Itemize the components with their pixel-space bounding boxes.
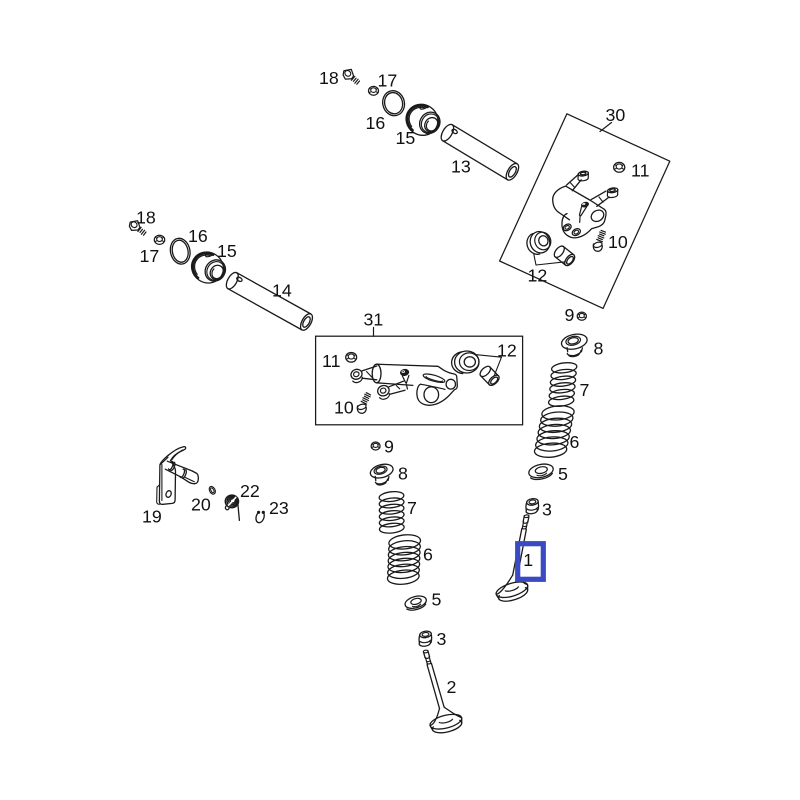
svg-text:1: 1 (523, 550, 533, 570)
svg-text:22: 22 (240, 481, 260, 501)
svg-text:12: 12 (497, 341, 517, 361)
svg-text:16: 16 (188, 226, 208, 246)
svg-text:11: 11 (631, 161, 650, 181)
svg-text:13: 13 (451, 157, 471, 177)
svg-text:3: 3 (437, 629, 447, 649)
svg-text:11: 11 (322, 351, 341, 371)
svg-text:7: 7 (407, 498, 417, 518)
svg-text:15: 15 (396, 128, 416, 148)
svg-text:16: 16 (366, 113, 386, 133)
svg-text:14: 14 (272, 281, 292, 301)
svg-text:8: 8 (398, 464, 408, 484)
svg-text:5: 5 (558, 464, 568, 484)
svg-text:18: 18 (319, 68, 339, 88)
svg-text:15: 15 (217, 241, 237, 261)
svg-text:8: 8 (594, 339, 604, 359)
svg-text:18: 18 (136, 208, 156, 228)
svg-text:12: 12 (528, 266, 548, 286)
svg-text:6: 6 (570, 432, 580, 452)
svg-text:7: 7 (580, 380, 590, 400)
svg-text:31: 31 (364, 310, 384, 330)
svg-text:10: 10 (334, 398, 354, 418)
svg-text:23: 23 (269, 498, 289, 518)
svg-text:10: 10 (608, 232, 628, 252)
svg-text:5: 5 (432, 590, 442, 610)
svg-text:30: 30 (606, 105, 626, 125)
svg-text:20: 20 (191, 495, 211, 515)
svg-text:17: 17 (140, 246, 160, 266)
svg-text:17: 17 (378, 71, 398, 91)
svg-text:6: 6 (423, 545, 433, 565)
svg-text:19: 19 (142, 507, 162, 527)
svg-text:2: 2 (447, 677, 457, 697)
svg-text:9: 9 (565, 305, 575, 325)
svg-text:3: 3 (542, 500, 552, 520)
svg-text:9: 9 (384, 437, 394, 457)
